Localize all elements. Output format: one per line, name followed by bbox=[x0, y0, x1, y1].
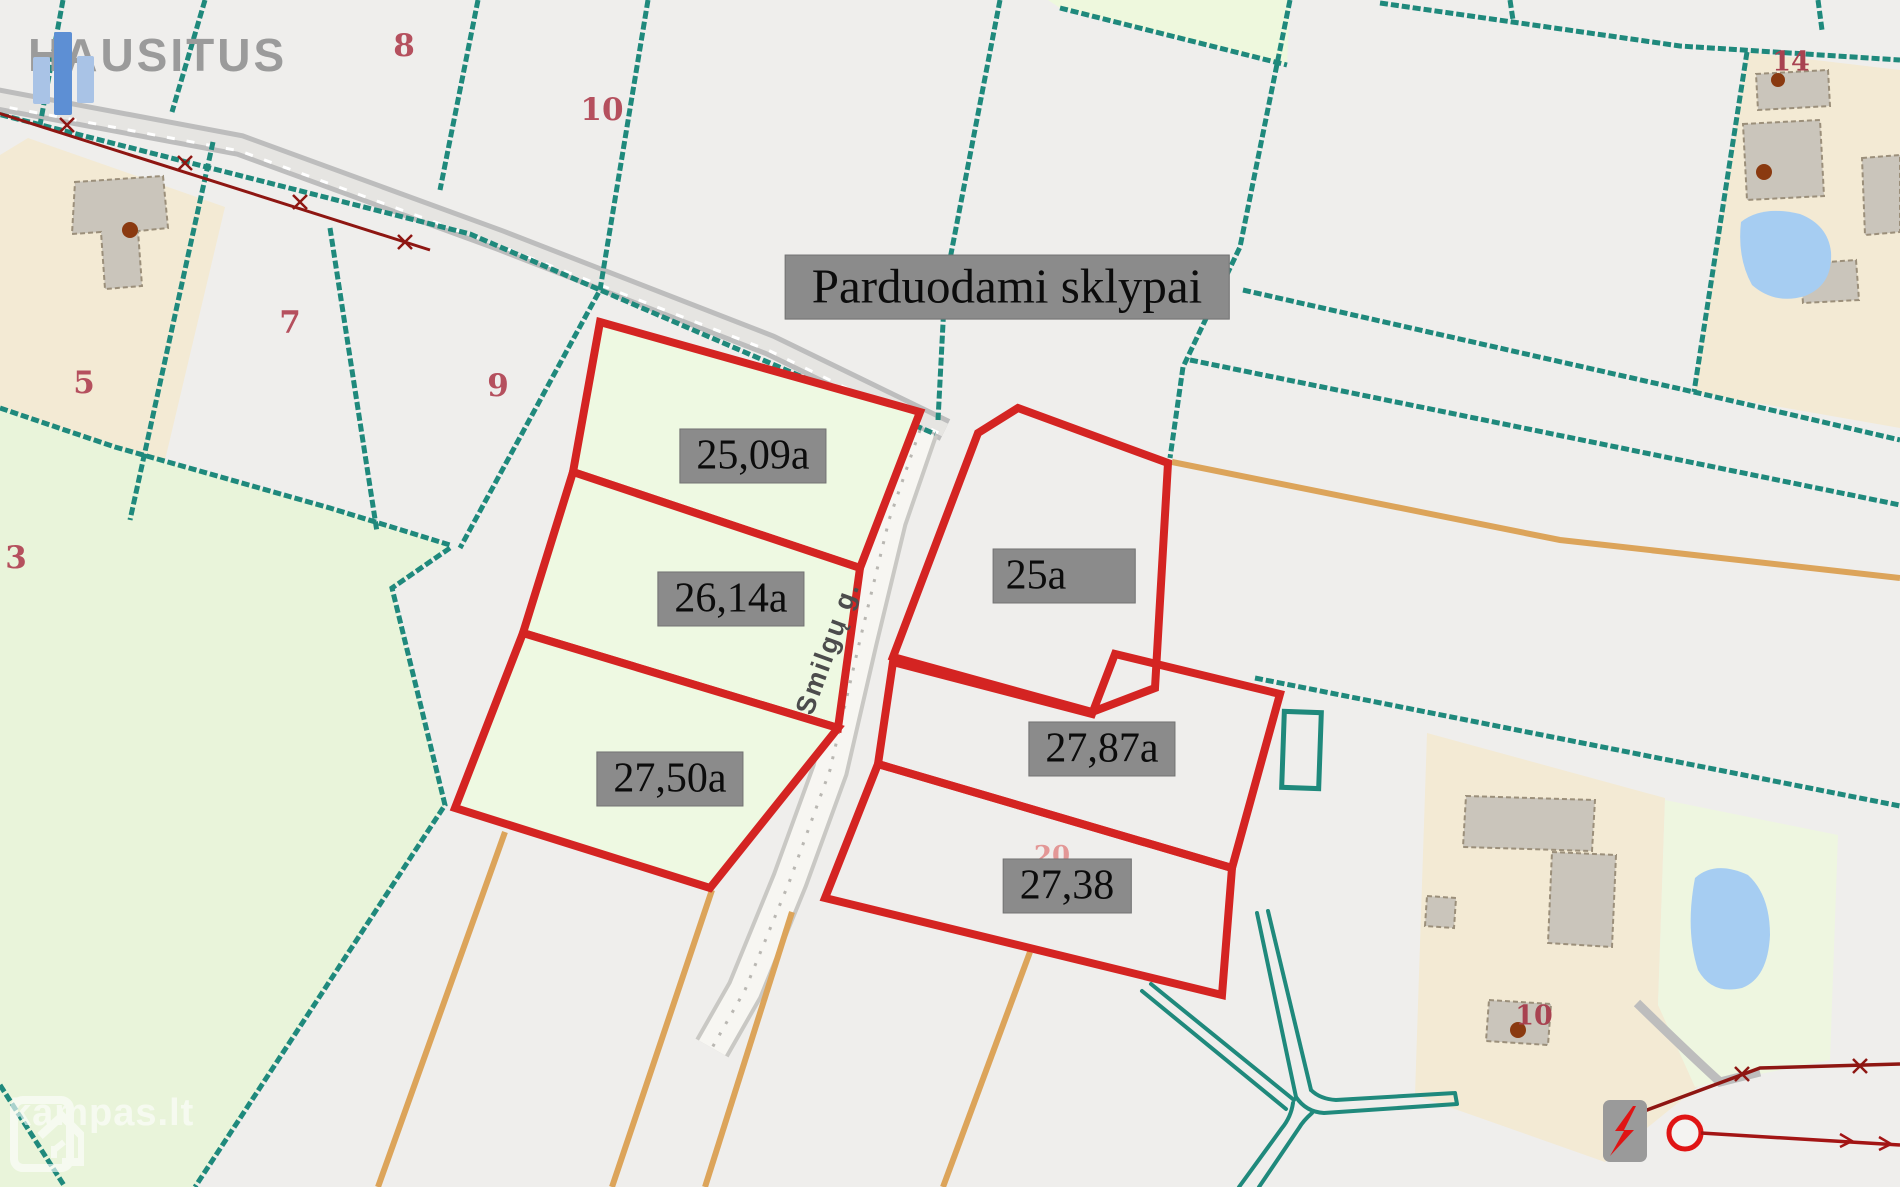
area-label-2750: 27,50a bbox=[596, 751, 743, 806]
area-label-2509: 25,09a bbox=[679, 428, 826, 483]
area-label-2738: 27,38 bbox=[1003, 858, 1132, 913]
parcel-number-10b: 10 bbox=[1515, 1001, 1553, 1032]
house-icon-k bbox=[54, 1142, 64, 1158]
kampas-watermark: kampas.lt bbox=[10, 1092, 194, 1135]
logo-bar-icon bbox=[77, 56, 94, 103]
area-label-2787: 27,87a bbox=[1028, 721, 1175, 776]
logo-bar-icon bbox=[33, 57, 50, 104]
parcel-number-14: 14 bbox=[1772, 47, 1810, 78]
hausitus-logo: HAUSITUS bbox=[28, 28, 287, 82]
map-title: Parduodami sklypai bbox=[785, 255, 1230, 320]
house-icon-roof bbox=[40, 1116, 82, 1162]
parcel-number-10: 10 bbox=[580, 92, 623, 128]
parcel-number-5: 5 bbox=[73, 365, 95, 401]
text-overlay: 8 10 5 7 9 3 14 10 20 Smilgų g. Parduoda… bbox=[0, 0, 1900, 1187]
parcel-number-3: 3 bbox=[5, 540, 27, 576]
parcel-number-7: 7 bbox=[279, 305, 301, 341]
parcel-number-9: 9 bbox=[487, 368, 509, 404]
area-label-2614: 26,14a bbox=[657, 571, 804, 626]
area-label-25a: 25a bbox=[993, 548, 1136, 603]
logo-bar-icon bbox=[54, 32, 72, 115]
cadastral-map: 8 10 5 7 9 3 14 10 20 Smilgų g. Parduoda… bbox=[0, 0, 1900, 1187]
kampas-house-icon bbox=[10, 1092, 84, 1174]
parcel-number-8: 8 bbox=[393, 28, 415, 64]
hausitus-logo-icon bbox=[28, 28, 120, 118]
